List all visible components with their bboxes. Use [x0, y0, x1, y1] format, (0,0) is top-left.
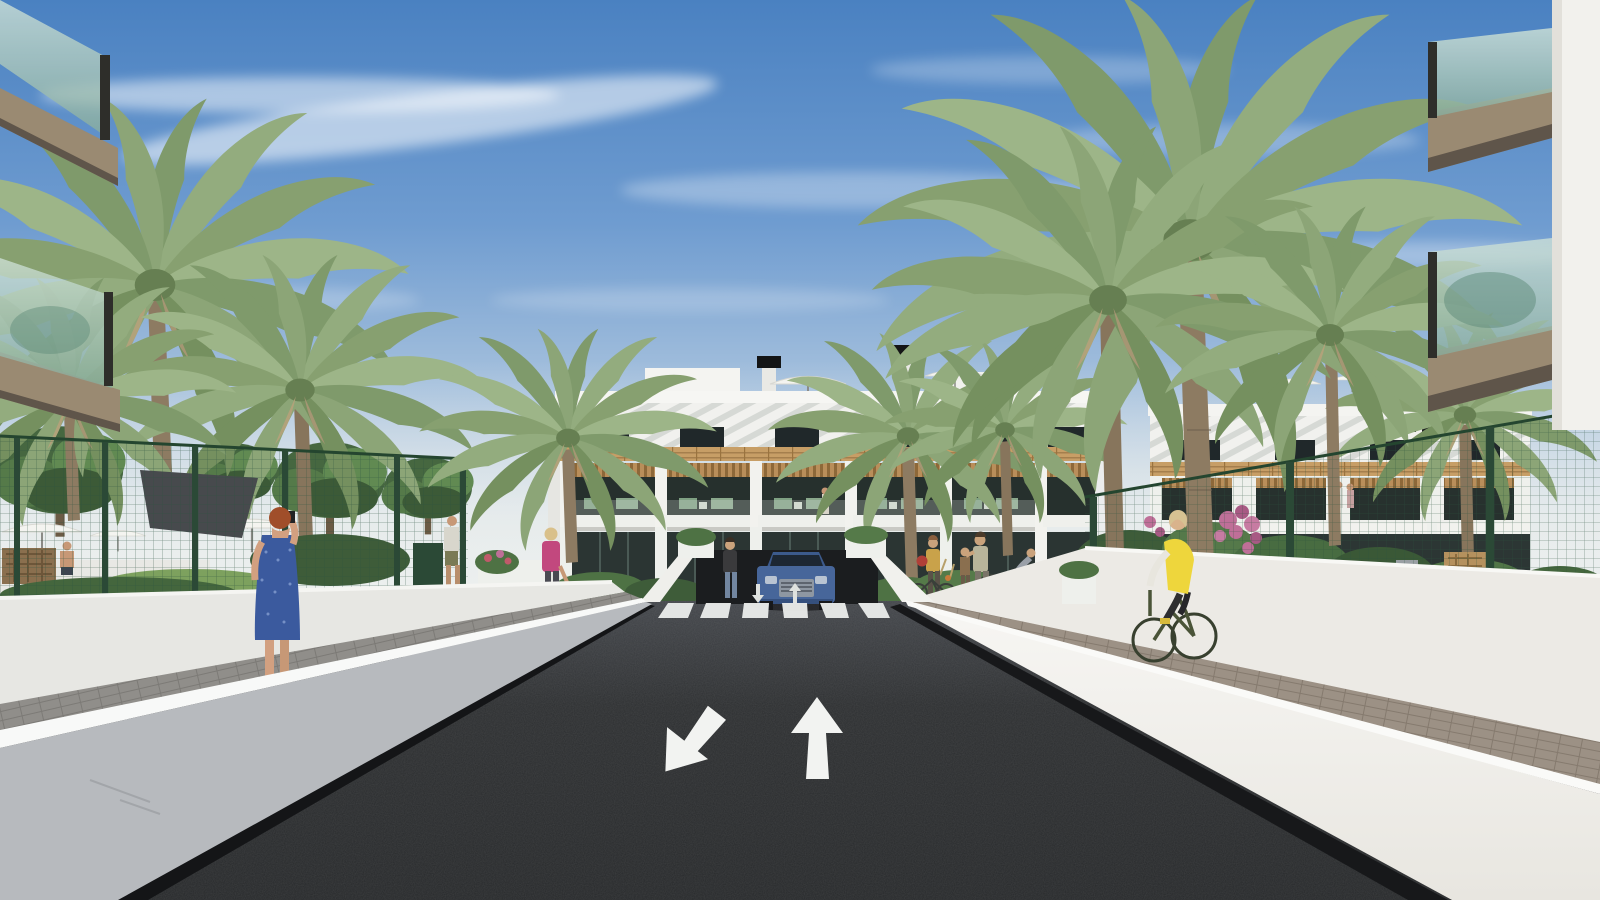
- glass-palm-shadow: [1444, 272, 1536, 328]
- glass-frame-post: [104, 292, 113, 386]
- glass-frame-post: [100, 55, 110, 140]
- windshield: [770, 555, 823, 566]
- crosswalk-stripe: [782, 603, 808, 618]
- headlight: [765, 576, 777, 584]
- fence-post: [14, 438, 20, 602]
- wall-edge-shade: [1552, 0, 1562, 430]
- headlight: [815, 576, 827, 584]
- glass-palm-shadow: [10, 306, 90, 354]
- auburn-hair: [269, 507, 291, 529]
- glass-frame-post: [1428, 252, 1437, 358]
- pink-flower-bed: [475, 550, 519, 574]
- glass-frame-post: [1428, 42, 1437, 118]
- fence-post: [192, 446, 198, 598]
- yellow-shoe: [1160, 618, 1170, 624]
- architectural-render: [0, 0, 1600, 900]
- garden-gate: [413, 543, 443, 589]
- left-mesh-fence: [0, 436, 468, 604]
- ramp-planter-left: [676, 528, 716, 558]
- fence-post: [102, 442, 108, 600]
- ramp-planter-right: [844, 526, 888, 558]
- red-bag: [917, 556, 928, 567]
- fence-post: [460, 458, 466, 588]
- render-canvas: [0, 0, 1600, 900]
- arm-raised: [292, 522, 295, 544]
- leg: [265, 640, 274, 678]
- crosswalk-stripe: [742, 603, 769, 618]
- fence-post: [394, 455, 400, 591]
- planter-shrub: [1059, 561, 1099, 579]
